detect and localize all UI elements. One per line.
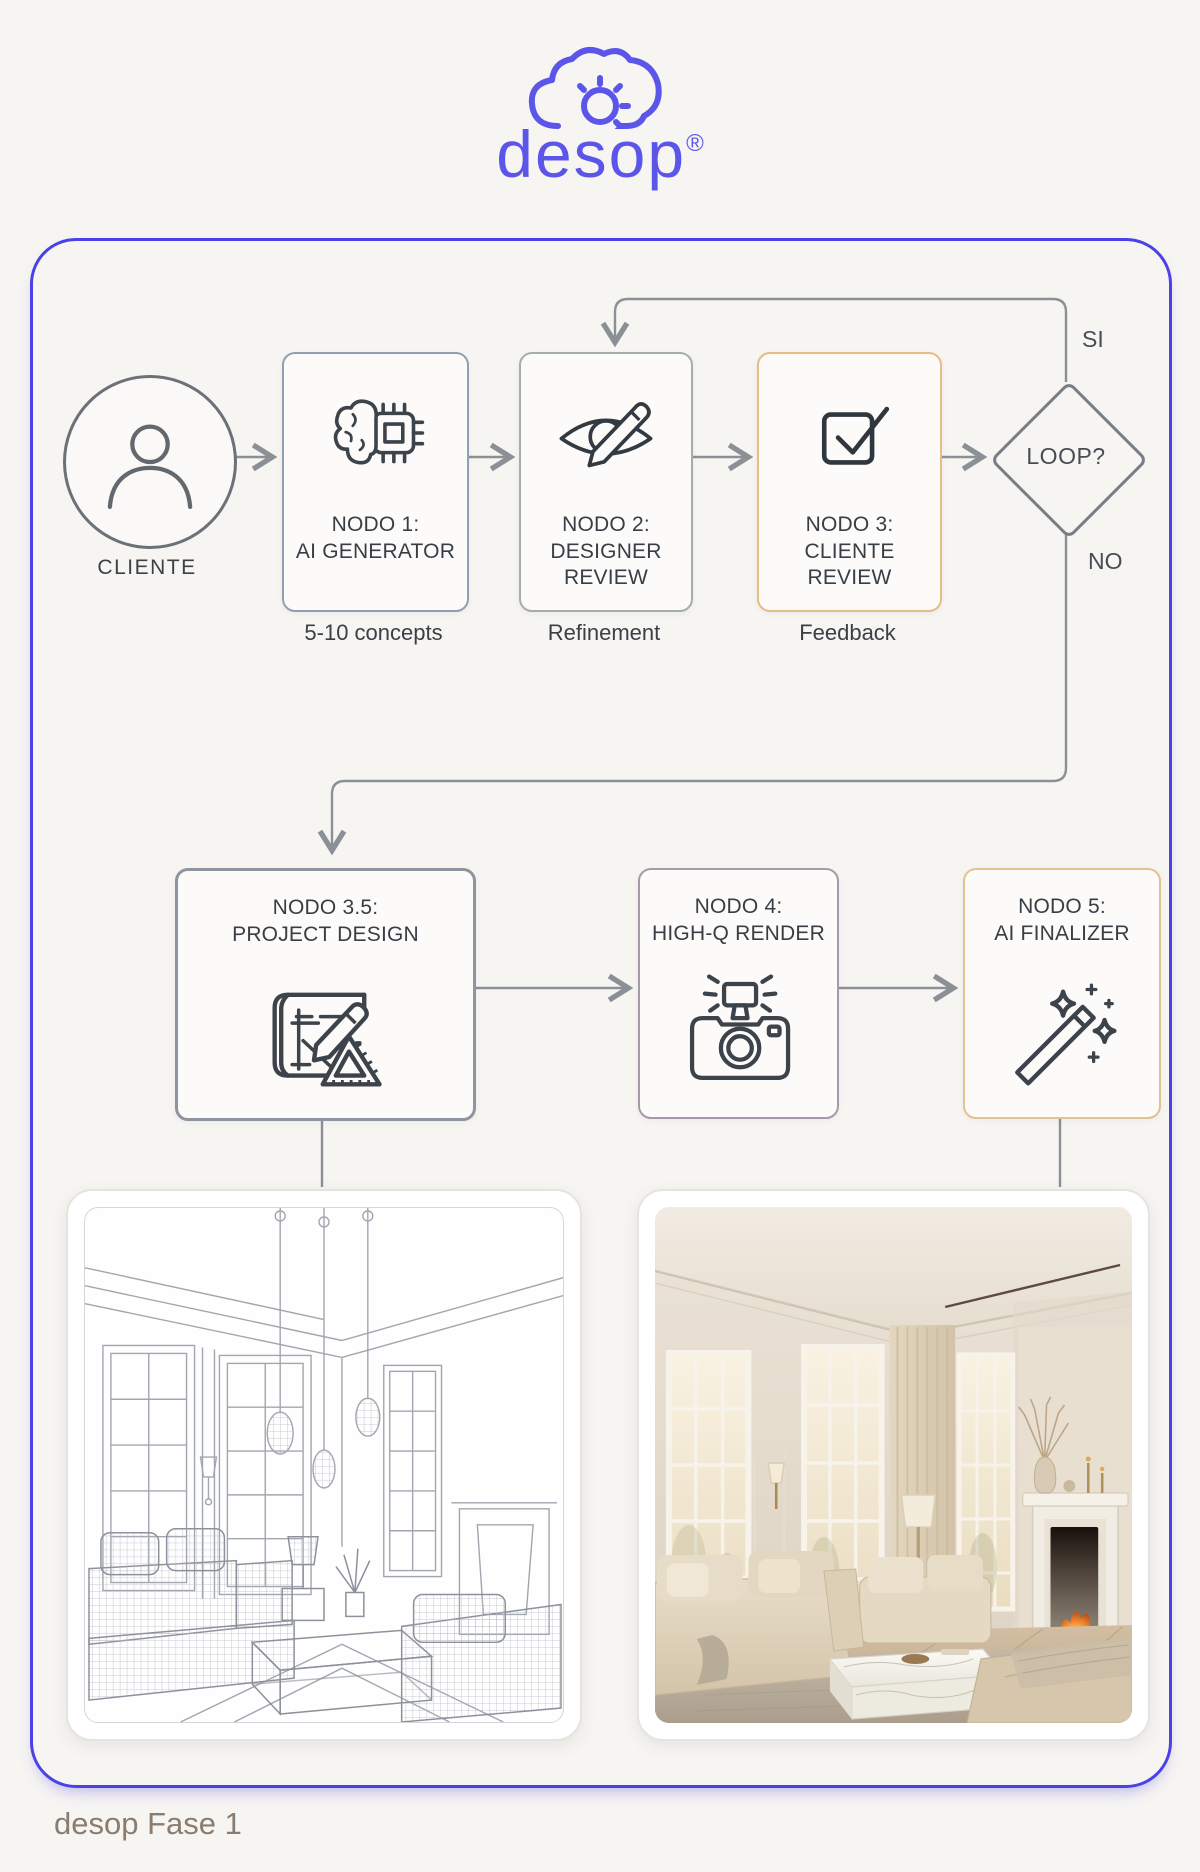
node-project-design: NODO 3.5: PROJECT DESIGN bbox=[175, 868, 476, 1121]
decision-no-label: NO bbox=[1088, 548, 1123, 575]
node-title: NODO 2: DESIGNER REVIEW bbox=[550, 512, 661, 592]
magic-wand-icon bbox=[1002, 972, 1122, 1092]
node-title: NODO 3: CLIENTE REVIEW bbox=[804, 512, 894, 592]
wireframe-preview-card bbox=[66, 1189, 582, 1741]
photorealistic-render-image bbox=[655, 1207, 1132, 1723]
sublabel-refinement: Refinement bbox=[494, 620, 714, 646]
node-title: NODO 1: AI GENERATOR bbox=[296, 512, 455, 565]
blueprint-icon bbox=[255, 972, 397, 1094]
node-ai-generator: NODO 1: AI GENERATOR bbox=[282, 352, 469, 612]
wireframe-sketch-image bbox=[84, 1207, 564, 1723]
eye-pencil-icon bbox=[554, 390, 658, 476]
node-ai-finalizer: NODO 5: AI FINALIZER bbox=[963, 868, 1161, 1119]
cliente-label: CLIENTE bbox=[43, 556, 251, 580]
node-title: NODO 4: HIGH-Q RENDER bbox=[652, 894, 825, 947]
registered-mark: ® bbox=[686, 130, 704, 157]
render-preview-card bbox=[637, 1189, 1150, 1741]
cliente-avatar bbox=[63, 375, 237, 549]
person-icon bbox=[91, 403, 209, 521]
sublabel-concepts: 5-10 concepts bbox=[252, 620, 495, 646]
decision-yes-label: SI bbox=[1082, 326, 1104, 353]
brain-chip-icon bbox=[326, 389, 426, 477]
node-title: NODO 5: AI FINALIZER bbox=[994, 894, 1129, 947]
node-high-q-render: NODO 4: HIGH-Q RENDER bbox=[638, 868, 839, 1119]
node-title: NODO 3.5: PROJECT DESIGN bbox=[232, 895, 419, 948]
loop-decision-label: LOOP? bbox=[996, 443, 1136, 470]
checkbox-icon bbox=[804, 387, 896, 479]
node-designer-review: NODO 2: DESIGNER REVIEW bbox=[519, 352, 693, 612]
sublabel-feedback: Feedback bbox=[737, 620, 958, 646]
node-cliente-review: NODO 3: CLIENTE REVIEW bbox=[757, 352, 942, 612]
camera-flash-icon bbox=[675, 973, 803, 1091]
logo-wordmark: desop® bbox=[0, 116, 1200, 192]
desop-workflow-infographic: desop® CLIENTE bbox=[0, 0, 1200, 1872]
phase-caption: desop Fase 1 bbox=[54, 1806, 242, 1842]
